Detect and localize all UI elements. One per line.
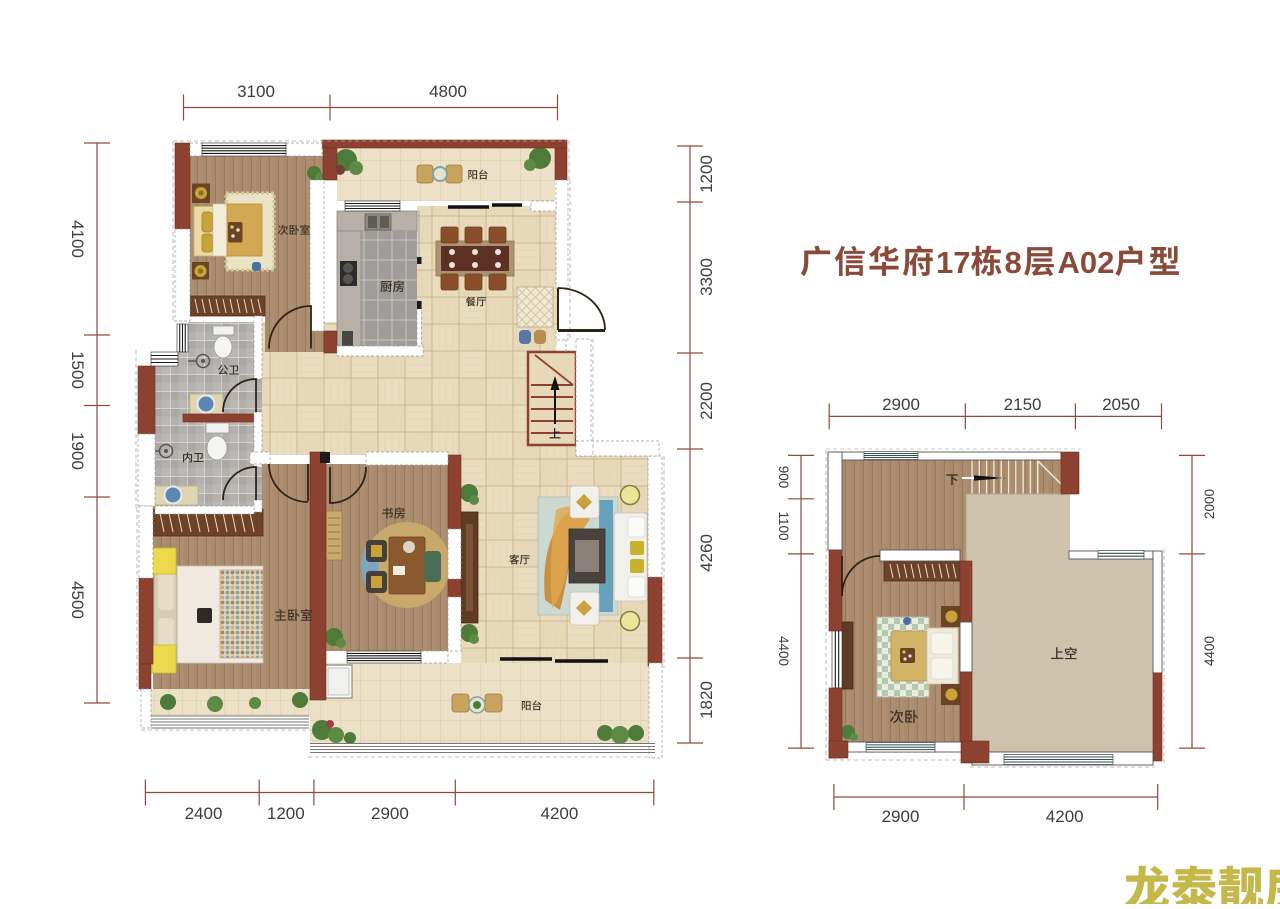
svg-text:1500: 1500: [68, 351, 87, 389]
svg-text:4400: 4400: [776, 636, 791, 666]
svg-text:1100: 1100: [776, 511, 791, 540]
svg-text:4200: 4200: [1046, 807, 1084, 826]
svg-text:17: 17: [936, 245, 970, 280]
svg-text:8: 8: [1005, 245, 1022, 280]
svg-text:3300: 3300: [697, 258, 716, 296]
svg-text:3100: 3100: [237, 82, 275, 101]
svg-text:1900: 1900: [68, 432, 87, 470]
svg-text:2150: 2150: [1004, 395, 1042, 414]
svg-text:2050: 2050: [1102, 395, 1140, 414]
svg-text:4260: 4260: [697, 534, 716, 572]
svg-text:2900: 2900: [882, 395, 920, 414]
svg-text:2200: 2200: [697, 382, 716, 420]
svg-text:1200: 1200: [267, 804, 305, 823]
svg-text:4400: 4400: [1202, 636, 1217, 666]
svg-text:4500: 4500: [68, 581, 87, 619]
svg-text:A02: A02: [1058, 245, 1115, 280]
svg-text:4100: 4100: [68, 220, 87, 258]
svg-text:2900: 2900: [371, 804, 409, 823]
svg-text:2400: 2400: [185, 804, 223, 823]
svg-text:2900: 2900: [882, 807, 920, 826]
svg-text:4200: 4200: [540, 804, 578, 823]
svg-text:2000: 2000: [1202, 489, 1217, 519]
svg-text:1820: 1820: [697, 681, 716, 719]
svg-text:4800: 4800: [429, 82, 467, 101]
svg-text:1200: 1200: [697, 155, 716, 193]
svg-text:900: 900: [776, 466, 791, 489]
